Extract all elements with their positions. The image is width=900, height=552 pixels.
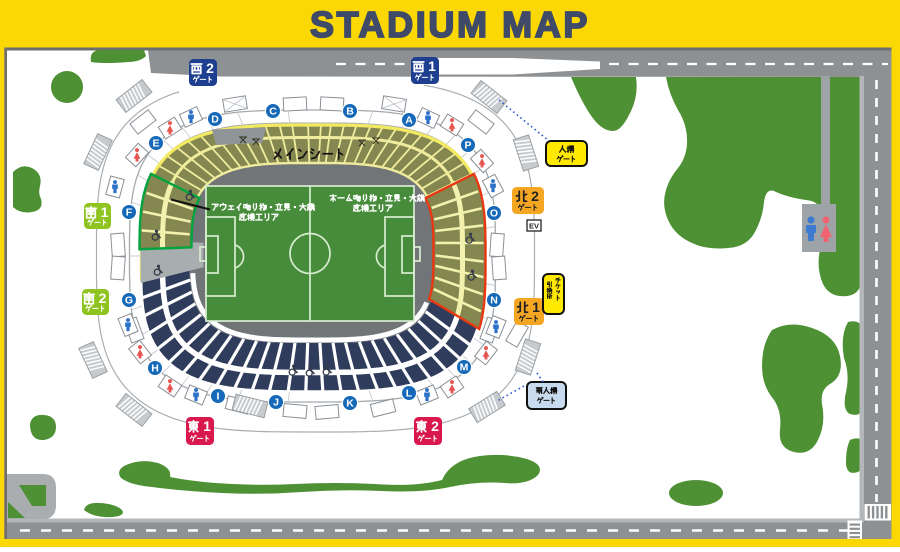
svg-text:A: A <box>405 115 413 127</box>
svg-text:P: P <box>464 140 471 152</box>
svg-text:J: J <box>273 397 279 409</box>
svg-text:1: 1 <box>428 58 436 74</box>
svg-text:2: 2 <box>431 418 439 434</box>
svg-text:L: L <box>406 388 413 400</box>
svg-text:2: 2 <box>531 188 539 204</box>
svg-text:2: 2 <box>206 60 214 76</box>
svg-text:1: 1 <box>101 204 109 220</box>
svg-text:F: F <box>126 207 133 219</box>
svg-text:1: 1 <box>532 299 540 315</box>
svg-text:STADIUM MAP: STADIUM MAP <box>310 4 590 45</box>
svg-text:G: G <box>125 295 133 307</box>
svg-text:2: 2 <box>99 290 107 306</box>
svg-text:O: O <box>490 208 498 220</box>
svg-text:C: C <box>269 106 277 118</box>
svg-text:N: N <box>490 295 498 307</box>
svg-text:H: H <box>151 363 159 375</box>
svg-text:I: I <box>217 391 220 403</box>
svg-text:M: M <box>460 362 469 374</box>
svg-text:K: K <box>346 398 354 410</box>
svg-text:E: E <box>152 138 159 150</box>
svg-text:B: B <box>346 106 354 118</box>
svg-text:D: D <box>211 114 219 126</box>
svg-text:1: 1 <box>203 418 211 434</box>
svg-text:EV: EV <box>529 222 539 231</box>
